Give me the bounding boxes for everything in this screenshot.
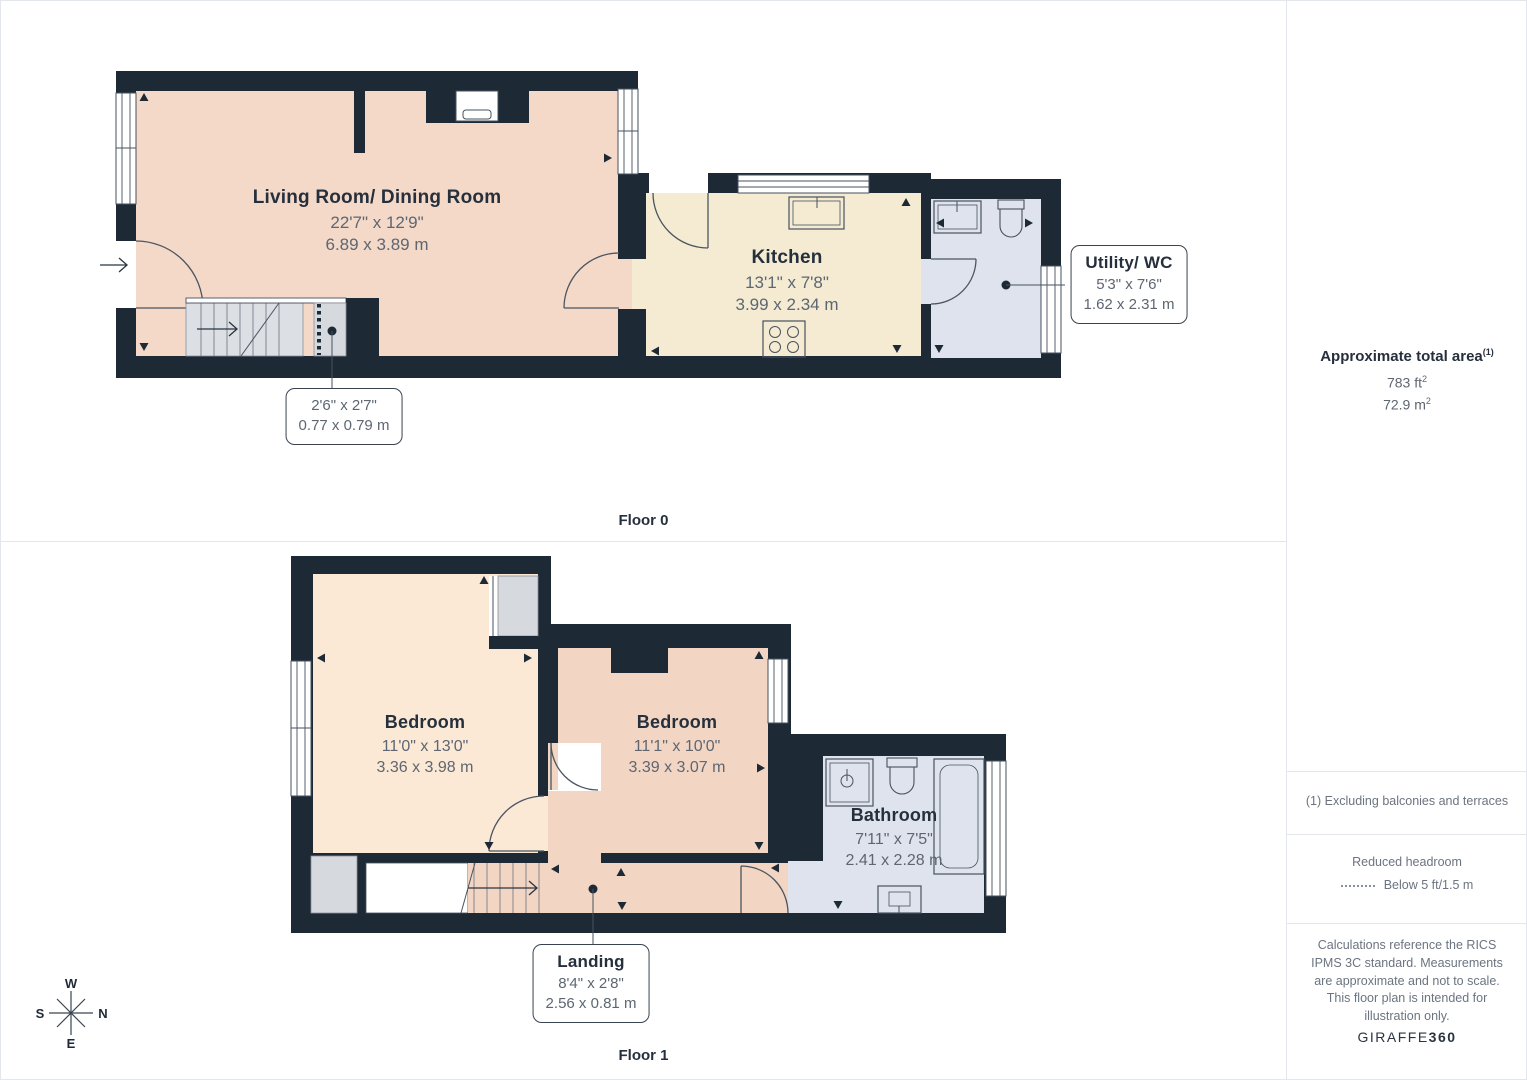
chimney-notch — [611, 648, 668, 673]
sidebar-section-divider — [1287, 834, 1527, 835]
closet — [489, 576, 538, 649]
landing-callout: Landing 8'4" x 2'8" 2.56 x 0.81 m — [533, 944, 650, 1023]
landing-size-metric: 2.56 x 0.81 m — [546, 994, 637, 1014]
sidebar-section-divider — [1287, 771, 1527, 772]
kitchen-floor — [646, 193, 921, 356]
footnote-ref: (1) — [1483, 347, 1494, 357]
utility-wc-callout: Utility/ WC 5'3" x 7'6" 1.62 x 2.31 m — [1071, 245, 1188, 324]
bathroom-vestibule — [788, 861, 823, 913]
compass-rose: W N S E — [21, 976, 121, 1056]
compass-south: S — [36, 1006, 45, 1021]
floor1-label: Floor 1 — [1, 1047, 1286, 1064]
sidebar-divider — [1286, 1, 1287, 1080]
floor0-label: Floor 0 — [1, 512, 1286, 529]
utility-wc-size-imperial: 5'3" x 7'6" — [1084, 275, 1175, 295]
utility-wc-size-metric: 1.62 x 2.31 m — [1084, 295, 1175, 315]
cupboard-size-metric: 0.77 x 0.79 m — [299, 416, 390, 436]
giraffe360-logo: GIRAFFE360 — [1287, 1029, 1527, 1045]
landing-size-imperial: 8'4" x 2'8" — [546, 974, 637, 994]
compass-north: N — [98, 1006, 107, 1021]
total-area-title: Approximate total area(1) — [1287, 347, 1527, 366]
reduced-headroom-title: Reduced headroom — [1287, 855, 1527, 869]
total-area-m: 72.9 m2 — [1287, 396, 1527, 413]
landing-name: Landing — [546, 952, 637, 972]
utility-wc-name: Utility/ WC — [1084, 253, 1175, 273]
floor1-stairs — [311, 853, 548, 913]
sidebar-section-divider — [1287, 923, 1527, 924]
disclaimer: Calculations reference the RICS IPMS 3C … — [1303, 937, 1511, 1026]
cupboard-callout: 2'6" x 2'7" 0.77 x 0.79 m — [286, 388, 403, 445]
chimney-recess — [426, 91, 529, 123]
floorplan-page: Living Room/ Dining Room 22'7" x 12'9" 6… — [0, 0, 1527, 1080]
compass-east: E — [67, 1036, 76, 1051]
reduced-headroom-desc: Below 5 ft/1.5 m — [1384, 878, 1474, 892]
interior-wall-stub — [354, 91, 365, 153]
dashed-line-icon — [1341, 885, 1375, 887]
balconies-footnote: (1) Excluding balconies and terraces — [1287, 794, 1527, 808]
cupboard-size-imperial: 2'6" x 2'7" — [299, 396, 390, 416]
total-area-ft: 783 ft2 — [1287, 374, 1527, 391]
floor-panel-divider — [1, 541, 1286, 542]
compass-west: W — [65, 976, 78, 991]
reduced-headroom-legend: Below 5 ft/1.5 m — [1287, 878, 1527, 892]
utility-wc-floor — [931, 199, 1041, 358]
